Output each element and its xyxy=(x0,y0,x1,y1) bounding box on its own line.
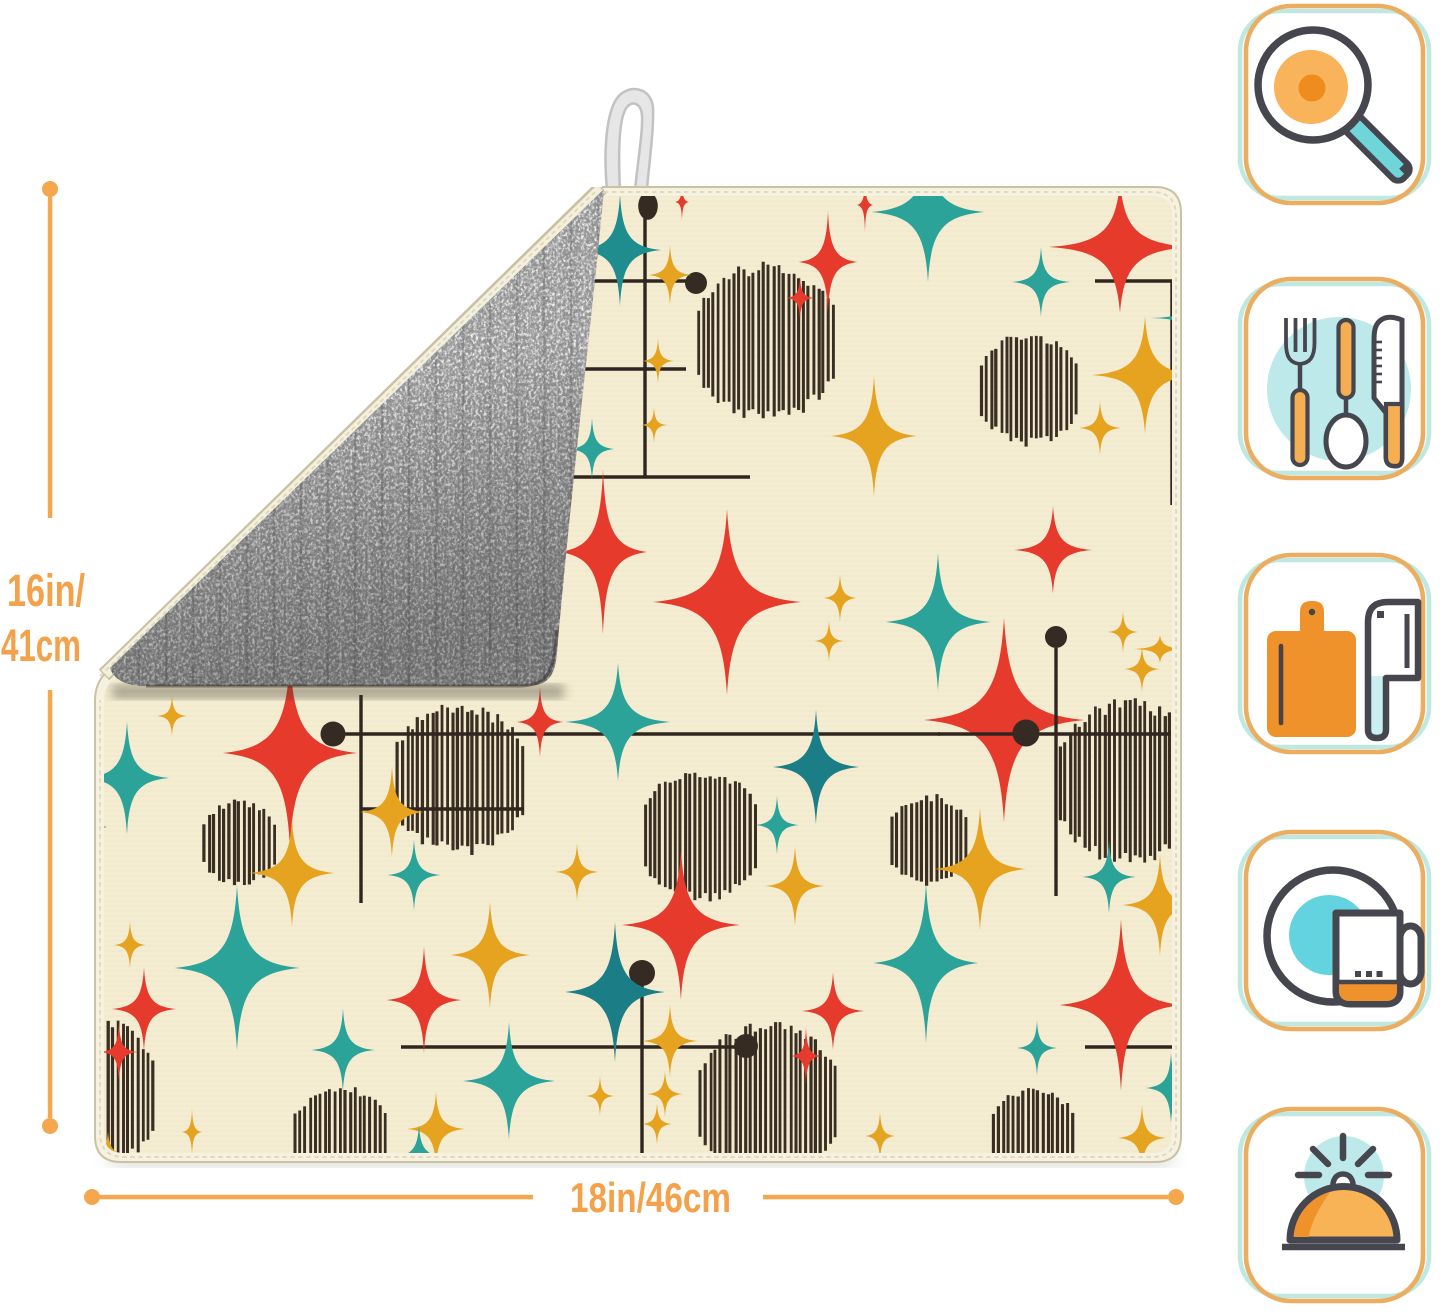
svg-text:41cm: 41cm xyxy=(1,620,81,671)
svg-text:18in/46cm: 18in/46cm xyxy=(570,1174,731,1221)
svg-text:16in/: 16in/ xyxy=(7,565,85,616)
